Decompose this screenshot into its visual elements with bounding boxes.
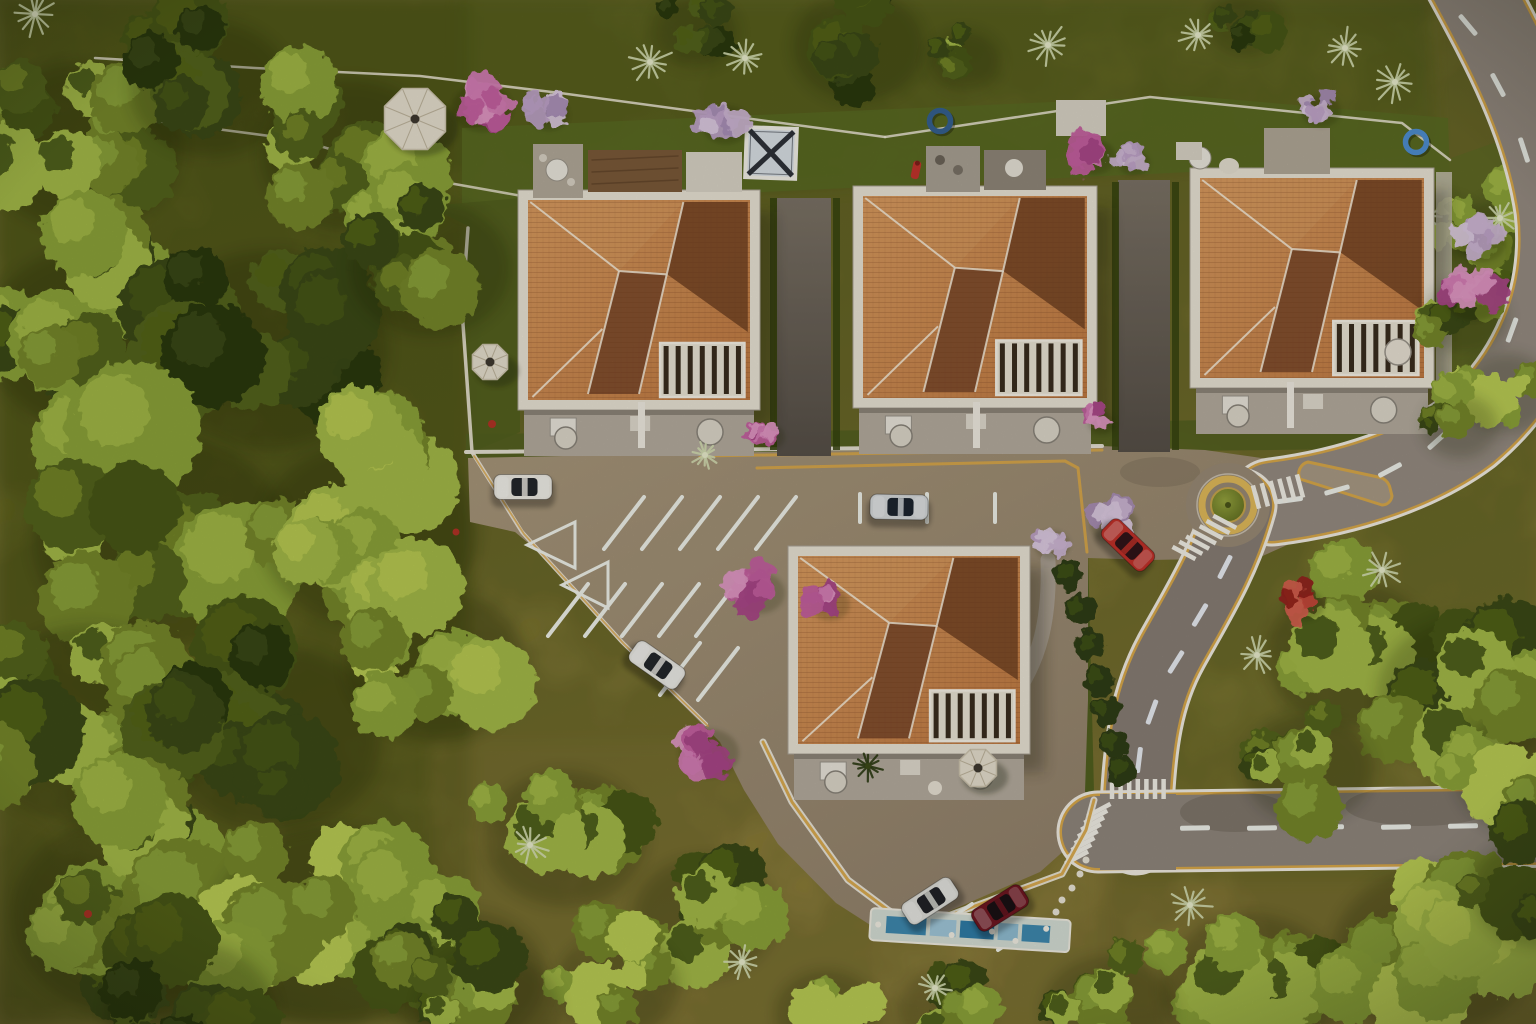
vignette: [0, 0, 1536, 1024]
scene-root: [0, 0, 1536, 1024]
layer-atmosphere: [0, 0, 1536, 1024]
aerial-scene-svg: [0, 0, 1536, 1024]
aerial-photo: [0, 0, 1536, 1024]
